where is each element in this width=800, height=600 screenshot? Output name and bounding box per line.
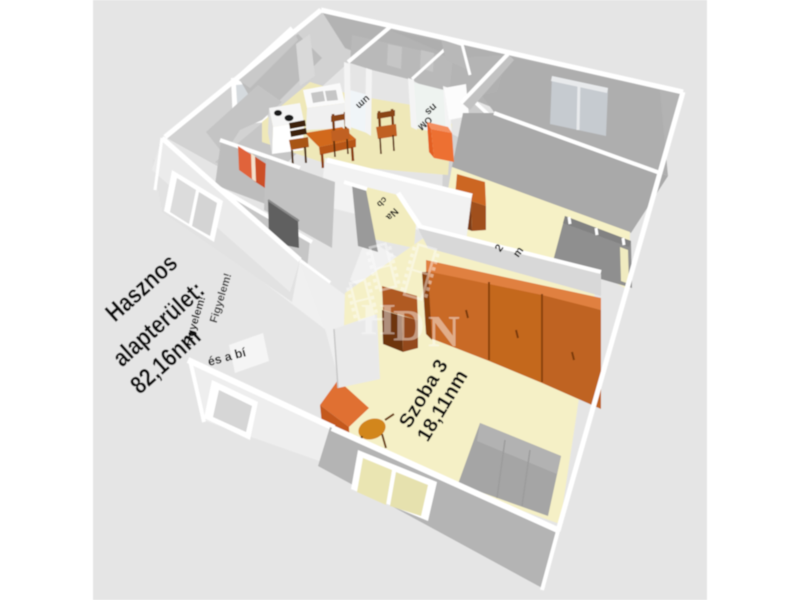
svg-text:N: N	[428, 307, 460, 356]
svg-text:D: D	[393, 301, 425, 350]
svg-text:H: H	[361, 295, 395, 344]
